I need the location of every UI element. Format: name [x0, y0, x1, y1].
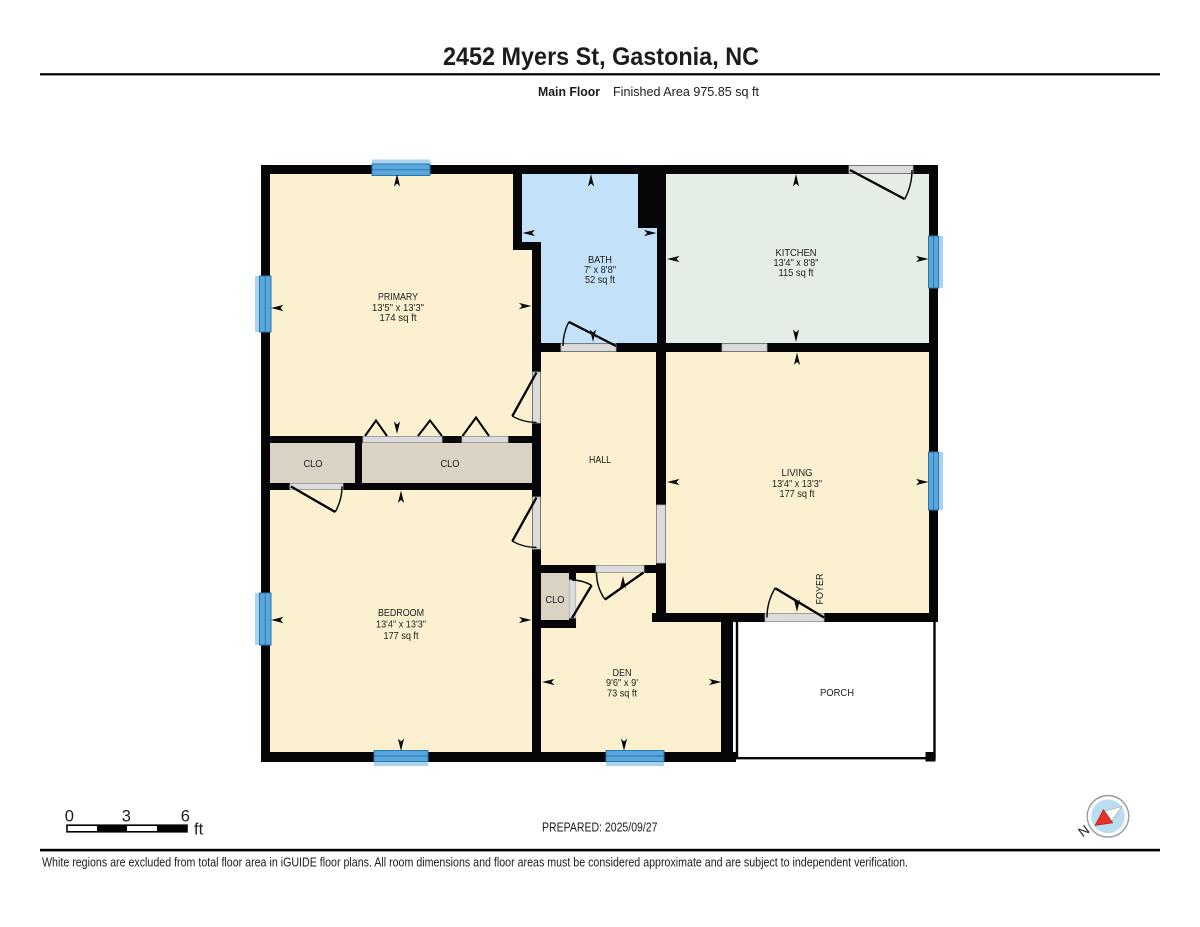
svg-text:115 sq ft: 115 sq ft	[779, 267, 814, 279]
svg-text:White regions are excluded fro: White regions are excluded from total fl…	[42, 855, 908, 870]
svg-text:2452 Myers St, Gastonia, NC: 2452 Myers St, Gastonia, NC	[443, 43, 759, 71]
svg-text:13'4" x 13'3": 13'4" x 13'3"	[376, 619, 426, 631]
svg-text:0: 0	[65, 808, 74, 826]
svg-text:HALL: HALL	[589, 454, 611, 466]
svg-text:52 sq ft: 52 sq ft	[585, 274, 615, 286]
svg-text:ft: ft	[194, 821, 204, 839]
svg-text:PREPARED: 2025/09/27: PREPARED: 2025/09/27	[542, 819, 658, 834]
svg-text:CLO: CLO	[441, 458, 460, 470]
svg-text:174 sq ft: 174 sq ft	[380, 312, 417, 324]
svg-text:PORCH: PORCH	[820, 687, 854, 699]
svg-text:6: 6	[181, 808, 190, 826]
svg-text:3: 3	[122, 808, 131, 826]
svg-text:177 sq ft: 177 sq ft	[780, 488, 815, 500]
svg-text:FOYER: FOYER	[814, 573, 826, 604]
svg-text:73 sq ft: 73 sq ft	[607, 688, 637, 700]
svg-text:CLO: CLO	[304, 458, 323, 470]
svg-text:CLO: CLO	[546, 594, 565, 606]
svg-text:Finished Area 975.85 sq ft: Finished Area 975.85 sq ft	[613, 84, 759, 99]
svg-text:Main Floor: Main Floor	[538, 84, 600, 99]
svg-text:BEDROOM: BEDROOM	[378, 607, 424, 619]
svg-text:177 sq ft: 177 sq ft	[384, 630, 419, 642]
